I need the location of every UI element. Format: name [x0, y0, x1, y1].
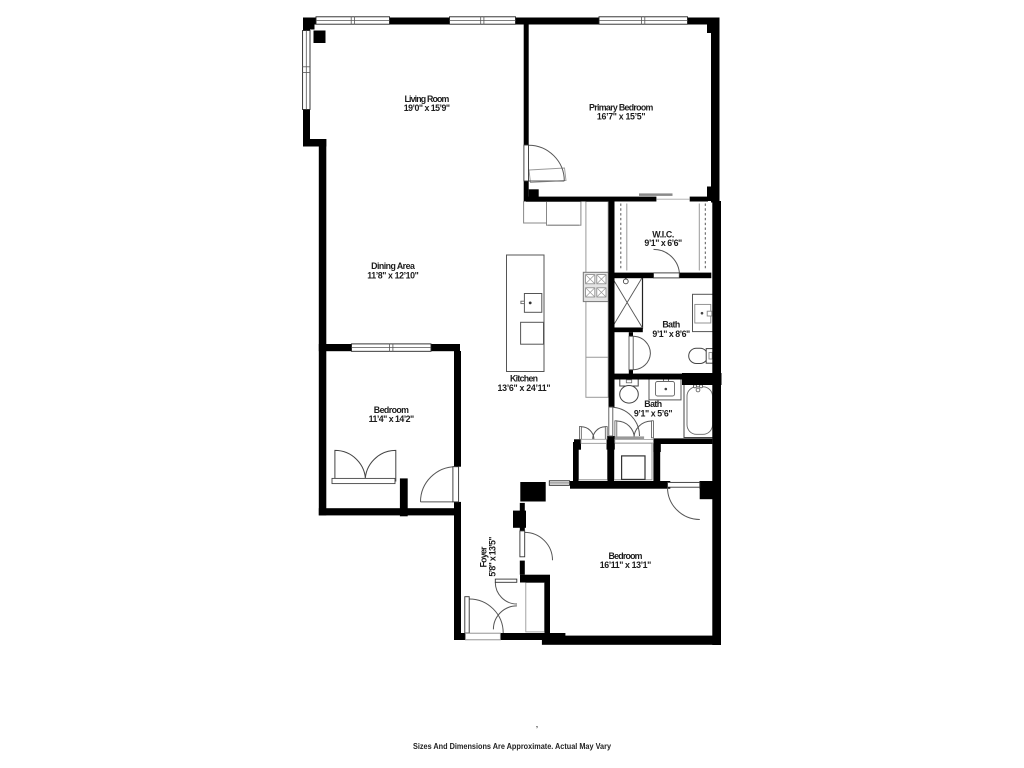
svg-text:13’6" x 24’11": 13’6" x 24’11"	[498, 383, 551, 393]
svg-text:11’8" x 12’10": 11’8" x 12’10"	[367, 270, 419, 280]
svg-text:Kitchen: Kitchen	[510, 374, 538, 384]
svg-text:’: ’	[536, 726, 538, 733]
svg-text:9’1" x 6’6": 9’1" x 6’6"	[644, 238, 682, 248]
svg-text:9’1" x 5’6": 9’1" x 5’6"	[634, 408, 673, 418]
svg-text:11’4" x 14’2": 11’4" x 14’2"	[369, 414, 415, 424]
svg-text:9’1" x 8’6": 9’1" x 8’6"	[652, 329, 690, 339]
svg-text:Sizes And Dimensions Are Appro: Sizes And Dimensions Are Approximate. Ac…	[413, 742, 612, 751]
svg-text:16’11" x 13’1": 16’11" x 13’1"	[600, 560, 652, 570]
svg-text:16’7" x 15’5": 16’7" x 15’5"	[597, 112, 646, 122]
svg-text:19’0" x 15’9": 19’0" x 15’9"	[404, 103, 450, 113]
svg-text:Dining Area: Dining Area	[371, 261, 415, 271]
svg-text:Bath: Bath	[644, 399, 662, 409]
svg-text:5’8" x 13’5": 5’8" x 13’5"	[488, 537, 498, 577]
